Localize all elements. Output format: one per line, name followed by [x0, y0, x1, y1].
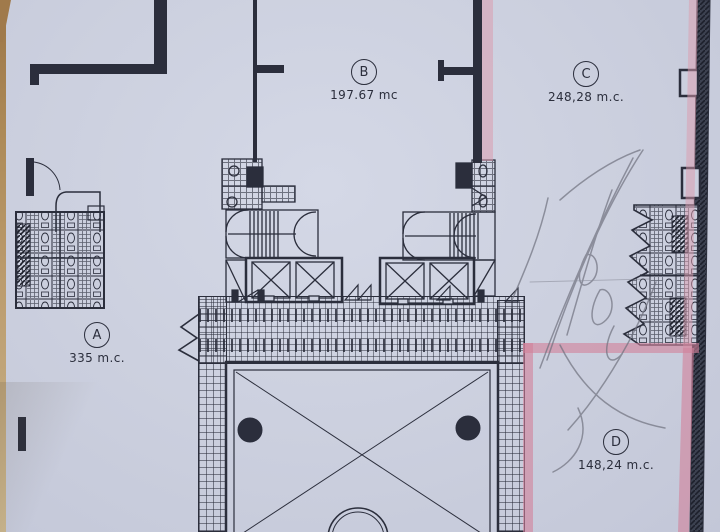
column-right	[456, 416, 480, 440]
exterior-wall-right	[680, 0, 710, 532]
left-room-door	[34, 162, 100, 232]
unit-label-c: C 248,28 m.c.	[534, 61, 638, 104]
stair-room	[226, 210, 318, 258]
unit-label-a: A 335 m.c.	[52, 322, 142, 365]
break-line-zigzag	[179, 314, 199, 361]
stair-core-right	[380, 160, 495, 304]
duct-solid	[247, 167, 263, 187]
wall-top-left-horizontal	[30, 64, 167, 74]
restroom-block-left	[16, 206, 104, 308]
stair-treads	[250, 211, 278, 257]
wall-partition-bc	[473, 0, 482, 163]
wall-partition-ab	[253, 0, 257, 162]
central-room	[226, 362, 498, 532]
wall-top-left-vertical	[154, 0, 167, 73]
arch-inner	[332, 512, 384, 532]
scan-edge-strip	[0, 0, 6, 532]
stair-core-left	[222, 159, 342, 302]
unit-b-badge: B	[351, 59, 377, 85]
pilaster-upper	[680, 70, 698, 96]
wall-partition-bc-cap	[438, 60, 444, 81]
unit-label-b: B 197.67 mc	[316, 59, 412, 102]
unit-d-area: 148,24 m.c.	[578, 458, 654, 472]
wall-top-left-nub	[30, 64, 39, 85]
duct-solid	[456, 163, 472, 188]
unit-b-area: 197.67 mc	[330, 88, 398, 102]
unit-label-d: D 148,24 m.c.	[564, 429, 668, 472]
paper-fold-shadow	[0, 382, 110, 532]
pilaster-lower	[682, 168, 700, 198]
unit-a-area: 335 m.c.	[69, 351, 125, 365]
unit-c-badge: C	[573, 61, 599, 87]
signature-scribble	[512, 150, 665, 472]
column-left	[238, 418, 262, 442]
wall-partition-ab-stub	[256, 65, 284, 73]
unit-a-badge: A	[84, 322, 110, 348]
stair-top-room	[222, 159, 262, 209]
stair-room	[403, 212, 495, 260]
wc-cells	[472, 160, 495, 212]
restroom-block-right	[624, 205, 698, 345]
unit-d-badge: D	[603, 429, 629, 455]
wall-stub-left	[26, 158, 34, 196]
corridor-band-top	[198, 296, 525, 364]
unit-c-area: 248,28 m.c.	[548, 90, 624, 104]
wall-stub-bottom-left	[18, 417, 26, 451]
arch-outer	[328, 508, 388, 532]
floor-plan-scan: A 335 m.c. B 197.67 mc C 248,28 m.c. D 1…	[0, 0, 720, 532]
stair-treads	[450, 213, 478, 259]
